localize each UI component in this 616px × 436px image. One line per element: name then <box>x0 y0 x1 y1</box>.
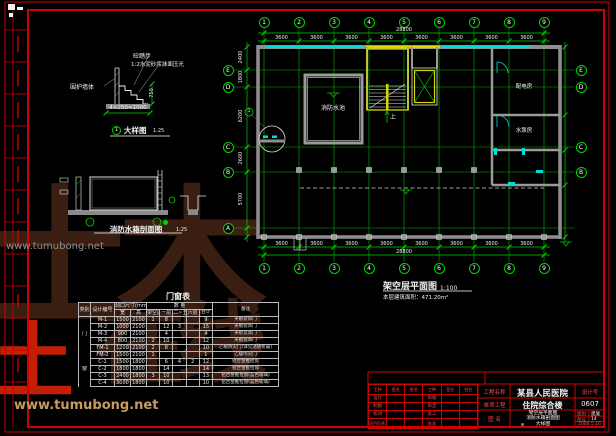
cell-category <box>79 380 91 387</box>
cell-total: 10 <box>199 380 212 387</box>
plan-title-row: 架空层平面图 1:100 <box>383 279 457 292</box>
cell-qty <box>186 317 199 324</box>
cell-total: 12 <box>199 359 212 366</box>
dimension-ticks <box>245 31 568 258</box>
cell-qty <box>186 366 199 373</box>
axis-bubble-right: B <box>576 167 587 178</box>
cell-width: 1500 <box>115 352 131 359</box>
table-row: 门 M-3 900 2100 4 4 夹板装饰门 <box>79 331 279 338</box>
cell-sign <box>441 411 459 419</box>
detail-bubble: 1 <box>112 126 121 135</box>
cell-code: C-1 <box>91 359 115 366</box>
table-row: C-4 3000 1800 10 10 铝合金推拉窗(蓝色玻璃) <box>79 380 279 387</box>
plan-top-total-dim: 28800 <box>374 27 434 33</box>
plan-dimension-lines <box>247 33 565 255</box>
cell-qty <box>173 331 186 338</box>
section-caption: 消防水箱剖面图 <box>96 224 176 235</box>
cell-category <box>79 373 91 380</box>
cell-height: 1800 <box>131 380 147 387</box>
detail-horizontal-dim: 4×250=1000 <box>102 105 154 111</box>
axis-bubbles-bottom: 123456789 <box>259 263 550 274</box>
cell-remark: 乙级防火门(详见消防专篇) <box>213 345 279 352</box>
bay-dim: 3600 <box>334 241 369 247</box>
door-window-table: 类别 设计编号 洞口尺寸(mm) 数 量 备注 宽高架空层一层二~五层六层合计 … <box>78 302 279 387</box>
cell-role: 项目负责人 <box>369 419 387 429</box>
signature-header-row: 工种签名姓名工种签名姓名 <box>369 385 478 395</box>
cell-qty <box>173 338 186 345</box>
cell-name <box>405 411 423 419</box>
cell-name <box>459 411 477 419</box>
cell-qty: 1 <box>147 317 160 324</box>
right-rooms <box>492 47 560 185</box>
cell-qty <box>147 331 160 338</box>
cell-qty <box>186 338 199 345</box>
axis-bubble: 8 <box>504 263 515 274</box>
header-cell: 数 量 <box>147 303 213 310</box>
header-cell: 合计 <box>199 310 212 317</box>
detail-finish-label: 1:2水泥砂浆抹面压光 <box>131 60 184 68</box>
drawing-no-value: 14 <box>591 417 597 422</box>
bay-dim: 3600 <box>299 35 334 41</box>
signature-row: 制图 审定 <box>369 403 478 411</box>
header-cell: 工种 <box>369 385 387 395</box>
cell-category <box>79 352 91 359</box>
entry-callout-number: 1 <box>245 109 253 114</box>
table-row: 窗 C-2 1800 1800 14 14 铝合金推拉窗 <box>79 366 279 373</box>
header-cell: 备注 <box>213 303 279 317</box>
cell-qty <box>173 366 186 373</box>
staircase <box>367 47 408 123</box>
table-row: FM-2 1500 2100 1 1 乙级防火门 <box>79 352 279 359</box>
watermark-url-mid: www.tumubong.net <box>6 241 104 252</box>
cell-remark: 铝合金推拉窗 <box>213 366 279 373</box>
cell-width: 900 <box>115 331 131 338</box>
cell-role: 设计 <box>369 395 387 403</box>
signature-row: 校对 总工 <box>369 411 478 419</box>
section-caption-dot <box>163 220 168 225</box>
cell-name <box>459 395 477 403</box>
axis-bubble-left: A <box>223 223 234 234</box>
watermark-url-bottom: www.tumubong.net <box>14 398 158 413</box>
cell-qty <box>147 359 160 366</box>
cell-width: 1200 <box>115 345 131 352</box>
cell-qty: 1 <box>147 352 160 359</box>
cell-width: 1800 <box>115 366 131 373</box>
cell-qty <box>186 331 199 338</box>
cell-qty <box>186 352 199 359</box>
detail-step-label: 砼踏步 <box>122 51 162 60</box>
axis-bubble: 3 <box>329 263 340 274</box>
cell-sign <box>387 395 405 403</box>
cell-role: 审核 <box>423 395 441 403</box>
axis-bubble: 9 <box>539 17 550 28</box>
cell-category <box>79 359 91 366</box>
cell-qty <box>186 324 199 331</box>
table-header-row-1: 类别 设计编号 洞口尺寸(mm) 数 量 备注 <box>79 303 279 310</box>
bay-dim: 3600 <box>404 241 439 247</box>
cell-height: 2100 <box>131 331 147 338</box>
door-window-table-title: 门窗表 <box>78 291 278 302</box>
cell-role: 审定 <box>423 403 441 411</box>
axis-bubble-left: B <box>223 167 234 178</box>
cell-code: FM-2 <box>91 352 115 359</box>
cell-qty: 12 <box>160 324 173 331</box>
header-cell: 设计编号 <box>91 303 115 317</box>
header-cell: 高 <box>131 310 147 317</box>
room-label-power: 配电房 <box>500 82 548 90</box>
cell-qty: 2 <box>147 338 160 345</box>
cell-sign <box>441 419 459 429</box>
bay-dim: 3600 <box>439 35 474 41</box>
bay-dim: 3600 <box>264 35 299 41</box>
bay-dim: 3600 <box>439 241 474 247</box>
cell-height: 2100 <box>131 324 147 331</box>
cell-qty <box>173 373 186 380</box>
cell-width: 3000 <box>115 380 131 387</box>
left-dim: 1800 <box>238 63 244 91</box>
cell-category <box>79 324 91 331</box>
cell-qty <box>173 352 186 359</box>
cell-height: 2100 <box>131 345 147 352</box>
cell-category: 门 <box>79 331 91 338</box>
axis-bubble: 1 <box>259 17 270 28</box>
cell-total: 1 <box>199 352 212 359</box>
cell-name <box>405 403 423 411</box>
cell-sign <box>387 419 405 429</box>
cell-qty <box>186 380 199 387</box>
detail-caption: 大样图 <box>124 125 147 136</box>
header-cell: 工种 <box>423 385 441 395</box>
design-no: 0607 <box>576 400 604 408</box>
cell-height: 1800 <box>131 366 147 373</box>
room-label-fire-pool: 消防水池 <box>308 103 358 112</box>
axis-bubble: 8 <box>504 17 515 28</box>
drawing-name-dot <box>521 423 524 426</box>
cell-qty: 8 <box>160 317 173 324</box>
cell-category <box>79 338 91 345</box>
cad-sheet: 土木 在线 土 www.tumubong.net www.tumubong.ne… <box>0 0 616 436</box>
plan-top-bay-dims: 36003600360036003600360036003600 <box>264 35 544 41</box>
axis-bubble-left: D <box>223 82 234 93</box>
signature-row: 项目负责人 批准 <box>369 419 478 429</box>
label-project-name: 工程名称 <box>479 388 510 396</box>
cell-remark: 夹板装饰门 <box>213 331 279 338</box>
cell-qty: 6 <box>160 359 173 366</box>
cell-name <box>405 419 423 429</box>
cell-height: 2100 <box>131 338 147 345</box>
cell-sign <box>387 411 405 419</box>
cell-remark: 铝合金推拉窗(蓝色玻璃) <box>213 380 279 387</box>
axis-bubble-right: D <box>576 82 587 93</box>
header-cell: 姓名 <box>405 385 423 395</box>
plan-axis-grid <box>234 28 575 262</box>
cell-total: 4 <box>199 331 212 338</box>
plan-bottom-bay-dims: 36003600360036003600360036003600 <box>264 241 544 247</box>
cell-qty <box>173 317 186 324</box>
cell-sign <box>441 395 459 403</box>
axis-bubble: 5 <box>399 263 410 274</box>
cell-height: 1800 <box>131 359 147 366</box>
bay-dim: 3600 <box>369 35 404 41</box>
axis-bubble: 9 <box>539 263 550 274</box>
axis-bubble: 3 <box>329 17 340 28</box>
label-design-no: 设计号 <box>576 388 604 396</box>
cell-code: C-2 <box>91 366 115 373</box>
project-name: 某县人民医院 <box>510 387 575 399</box>
axis-bubble: 7 <box>469 263 480 274</box>
header-cell: 二~五层 <box>173 310 186 317</box>
cell-total: 10 <box>199 345 212 352</box>
cell-sign <box>387 403 405 411</box>
detail-scale: 1:25 <box>153 128 164 134</box>
detail-wall-label: 围护墙体 <box>60 82 104 91</box>
drawing-date: 2006.5.16 <box>575 422 604 427</box>
cell-role: 校对 <box>369 411 387 419</box>
cell-category: 窗 <box>79 366 91 373</box>
cell-total: 15 <box>199 324 212 331</box>
elevator-shaft <box>412 47 437 105</box>
axis-bubble-right: C <box>576 142 587 153</box>
header-cell: 一层 <box>160 310 173 317</box>
axis-bubble: 4 <box>364 17 375 28</box>
axis-bubble: 6 <box>434 263 445 274</box>
cell-width: 800 <box>115 338 131 345</box>
cell-code: M-4 <box>91 338 115 345</box>
bay-dim: 3600 <box>369 241 404 247</box>
cell-remark: 铝合金推拉窗(蓝色玻璃) <box>213 373 279 380</box>
axis-bubble: 6 <box>434 17 445 28</box>
corner-mark <box>17 7 23 10</box>
plan-title: 架空层平面图 <box>383 279 437 292</box>
header-cell: 架空层 <box>147 310 160 317</box>
cell-qty: 3 <box>173 324 186 331</box>
entry-callout <box>245 108 285 152</box>
bay-dim: 3600 <box>509 35 544 41</box>
cell-remark: 夹板装饰门 <box>213 338 279 345</box>
left-dim: 2600 <box>238 144 244 172</box>
header-cell: 签名 <box>387 385 405 395</box>
cell-qty: 4 <box>160 331 173 338</box>
axis-bubble: 4 <box>364 263 375 274</box>
cell-role: 制图 <box>369 403 387 411</box>
cell-category <box>79 345 91 352</box>
axis-bubble-left: C <box>223 142 234 153</box>
cell-qty <box>160 352 173 359</box>
cell-qty <box>147 380 160 387</box>
table-row: M-1 1500 2100 1 8 9 夹板装饰门 <box>79 317 279 324</box>
cell-name <box>459 419 477 429</box>
cell-qty: 2 <box>186 359 199 366</box>
cell-sign <box>441 403 459 411</box>
cell-qty <box>173 345 186 352</box>
plan-scale: 1:100 <box>440 285 457 292</box>
bay-dim: 3600 <box>509 241 544 247</box>
cell-remark: 夹板装饰门 <box>213 317 279 324</box>
bay-dim: 3600 <box>474 241 509 247</box>
cell-height: 2100 <box>131 317 147 324</box>
cell-name <box>405 395 423 403</box>
signature-row: 设计 审核 <box>369 395 478 403</box>
cell-qty <box>147 366 160 373</box>
cell-qty: 4 <box>173 359 186 366</box>
left-dim: 6200 <box>238 102 244 130</box>
cell-qty <box>173 380 186 387</box>
bay-dim: 3600 <box>334 35 369 41</box>
cell-role: 总工 <box>423 411 441 419</box>
cell-total: 9 <box>199 317 212 324</box>
cell-qty: 10 <box>160 373 173 380</box>
section-scale: 1:25 <box>176 227 187 233</box>
cell-width: 2400 <box>115 373 131 380</box>
cell-remark: 夹板装饰门 <box>213 324 279 331</box>
sub-project-name: 住院综合楼 <box>510 400 575 411</box>
cell-total: 13 <box>199 373 212 380</box>
bay-dim: 3600 <box>404 35 439 41</box>
cell-category <box>79 317 91 324</box>
axis-bubble: 2 <box>294 263 305 274</box>
cell-qty: 8 <box>160 345 173 352</box>
header-cell: 宽 <box>115 310 131 317</box>
detail-vertical-dim: 750 <box>149 83 155 103</box>
cell-remark: 乙级防火门 <box>213 352 279 359</box>
cell-qty: 10 <box>160 380 173 387</box>
cell-qty: 14 <box>160 366 173 373</box>
corner-mark <box>8 4 15 10</box>
plan-area-note: 本层建筑面积：471.20m² <box>383 293 448 301</box>
bay-dim: 3600 <box>474 35 509 41</box>
axis-bubble-right: E <box>576 65 587 76</box>
cell-code: C-3 <box>91 373 115 380</box>
bay-dim: 3600 <box>299 241 334 247</box>
corner-mark <box>9 13 13 17</box>
label-sub-project: 单项工程 <box>479 401 510 409</box>
room-label-pump: 水泵房 <box>500 126 548 134</box>
axis-bubble: 2 <box>294 17 305 28</box>
table-row: C-3 2400 1800 3 10 13 铝合金推拉窗(蓝色玻璃) <box>79 373 279 380</box>
table-row: FM-1 1200 2100 2 8 10 乙级防火门(详见消防专篇) <box>79 345 279 352</box>
cell-width: 1500 <box>115 359 131 366</box>
cell-total: 14 <box>199 366 212 373</box>
cell-height: 2100 <box>131 352 147 359</box>
cell-name <box>459 403 477 411</box>
table-row: C-1 1500 1800 6 4 2 12 铝合金推拉窗 <box>79 359 279 366</box>
cell-width: 1500 <box>115 317 131 324</box>
table-row: M-4 800 2100 2 10 12 夹板装饰门 <box>79 338 279 345</box>
cell-width: 1000 <box>115 324 131 331</box>
cell-qty <box>186 345 199 352</box>
cell-height: 1800 <box>131 373 147 380</box>
cell-qty: 3 <box>147 373 160 380</box>
axis-bubble: 1 <box>259 263 270 274</box>
cell-code: M-1 <box>91 317 115 324</box>
plan-bottom-total-dim: 28800 <box>374 249 434 255</box>
signature-table: 工种签名姓名工种签名姓名 设计 审核 制图 审定 校对 总工 <box>368 384 478 429</box>
cell-code: FM-1 <box>91 345 115 352</box>
cell-remark: 铝合金推拉窗 <box>213 359 279 366</box>
cell-role: 批准 <box>423 419 441 429</box>
label-drawing-name: 图 名 <box>479 415 510 423</box>
header-cell: 类别 <box>79 303 91 317</box>
header-cell: 洞口尺寸(mm) <box>115 303 147 310</box>
header-cell: 六层 <box>186 310 199 317</box>
header-cell: 姓名 <box>459 385 477 395</box>
cell-qty: 10 <box>160 338 173 345</box>
cell-code: C-4 <box>91 380 115 387</box>
cell-code: M-2 <box>91 324 115 331</box>
cell-qty: 2 <box>147 345 160 352</box>
axis-bubble: 7 <box>469 17 480 28</box>
bay-dim: 3600 <box>264 241 299 247</box>
table-row: M-2 1000 2100 12 3 15 夹板装饰门 <box>79 324 279 331</box>
cell-code: M-3 <box>91 331 115 338</box>
stair-up-label: 上 <box>390 112 396 121</box>
cell-qty <box>186 373 199 380</box>
cell-qty <box>147 324 160 331</box>
cell-total: 12 <box>199 338 212 345</box>
axis-bubble-left: E <box>223 65 234 76</box>
left-dim: 5700 <box>238 185 244 213</box>
header-cell: 签名 <box>441 385 459 395</box>
